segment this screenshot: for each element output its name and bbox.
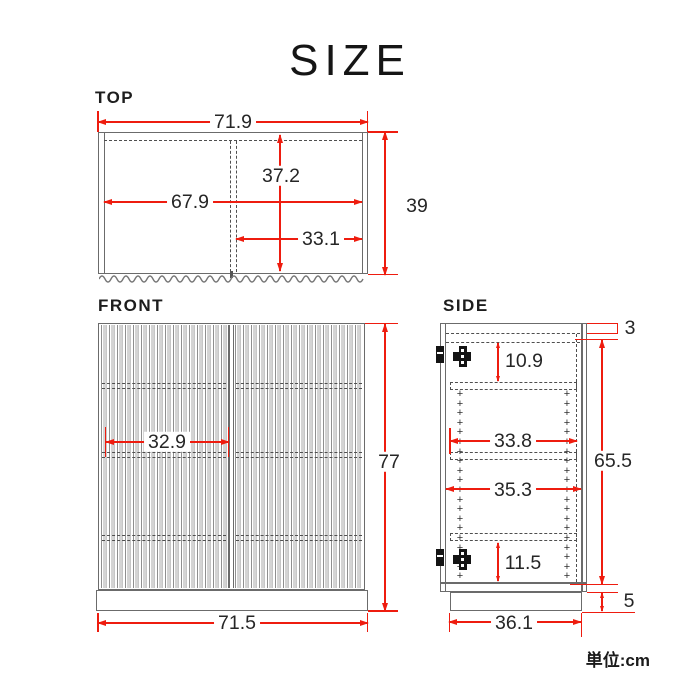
front-shelf-dashed <box>236 388 362 389</box>
top-view-outline <box>98 132 368 274</box>
page-title: SIZE <box>0 36 700 86</box>
top-center-dashed-line-right <box>236 141 237 272</box>
dim-line-side-base-height <box>601 593 603 611</box>
side-shelf-dashed <box>450 452 577 460</box>
top-center-dashed-line-left <box>230 141 231 272</box>
side-shelf-dashed <box>450 382 577 390</box>
dim-label-side-base-height: 5 <box>620 591 639 611</box>
dim-line-side-shelf-to-bottom <box>497 543 499 581</box>
front-shelf-dashed <box>102 388 226 389</box>
hinge-plate-slit <box>437 352 443 354</box>
front-shelf-dashed <box>102 457 226 458</box>
unit-label: 単位:cm <box>558 646 650 671</box>
top-back-dashed-line <box>104 140 362 141</box>
dim-label-side-inner-height: 65.5 <box>590 451 636 471</box>
hinge-screw-dot <box>461 349 464 352</box>
top-wavy-front-edge <box>99 273 367 285</box>
dim-label-side-top-to-shelf: 10.9 <box>501 351 547 371</box>
dim-label-side-base-depth: 36.1 <box>491 613 537 633</box>
dim-label-front-door-width: 32.9 <box>144 432 190 452</box>
front-shelf-dashed <box>236 535 362 536</box>
hinge-plate-icon <box>436 346 444 363</box>
front-shelf-dashed <box>236 452 362 453</box>
side-view-label: SIDE <box>443 296 489 316</box>
side-back-panel-inner-line <box>581 324 583 591</box>
hinge-screw-dot <box>461 361 464 364</box>
size-diagram: SIZE TOP 71.9 39 67.9 37.2 33.1 FRONT <box>0 0 700 700</box>
dim-label-front-base-width: 71.5 <box>214 613 260 633</box>
dim-tick <box>575 339 618 341</box>
front-shelf-dashed <box>236 457 362 458</box>
dim-tick <box>587 333 618 335</box>
dim-label-side-shelf-depth: 33.8 <box>490 431 536 451</box>
dim-label-front-height: 77 <box>374 452 404 472</box>
dim-line-top-inner-depth <box>279 135 281 271</box>
side-shelf-dashed <box>450 533 577 541</box>
hinge-screw-dot <box>461 355 464 358</box>
dim-label-side-top-thickness: 3 <box>621 318 640 338</box>
hinge-screw-dot <box>461 558 464 561</box>
side-pin-holes-back-column: + + + + + + + + + + + + + + + + + + + + <box>562 390 572 582</box>
dim-label-side-inner-depth: 35.3 <box>490 480 536 500</box>
dim-label-top-outer-width: 71.9 <box>210 112 256 132</box>
front-shelf-dashed <box>236 540 362 541</box>
dim-label-side-shelf-to-bottom: 11.5 <box>501 553 546 573</box>
side-top-inner-dashed <box>446 342 580 343</box>
front-door-gap-line-right <box>233 325 235 588</box>
dim-label-top-right-section: 33.1 <box>298 229 344 249</box>
front-shelf-dashed <box>102 540 226 541</box>
hinge-plate-slit <box>437 555 443 557</box>
front-shelf-dashed <box>236 383 362 384</box>
front-shelf-dashed <box>102 535 226 536</box>
dim-label-top-inner-depth: 37.2 <box>258 166 304 186</box>
dim-label-top-depth: 39 <box>402 196 432 216</box>
front-base-plinth <box>96 590 368 611</box>
side-front-panel-inner-line <box>445 324 447 591</box>
dim-line-top-depth <box>384 132 386 275</box>
dim-tick <box>587 323 618 325</box>
dim-label-top-inner-width: 67.9 <box>167 192 213 212</box>
front-view-label: FRONT <box>98 296 164 316</box>
front-shelf-dashed <box>102 383 226 384</box>
top-view-label: TOP <box>95 88 134 108</box>
dim-line-top-inner-width <box>104 201 362 203</box>
hinge-screw-dot <box>461 552 464 555</box>
side-top-panel-dashed <box>446 333 580 334</box>
side-bottom-panel-line <box>441 582 586 584</box>
hinge-screw-dot <box>461 564 464 567</box>
side-base-plinth <box>450 592 582 611</box>
dim-tick <box>581 613 583 637</box>
dim-line-side-top-to-shelf <box>497 343 499 381</box>
dim-tick <box>570 584 618 586</box>
dim-tick <box>617 323 619 335</box>
hinge-plate-icon <box>436 549 444 566</box>
